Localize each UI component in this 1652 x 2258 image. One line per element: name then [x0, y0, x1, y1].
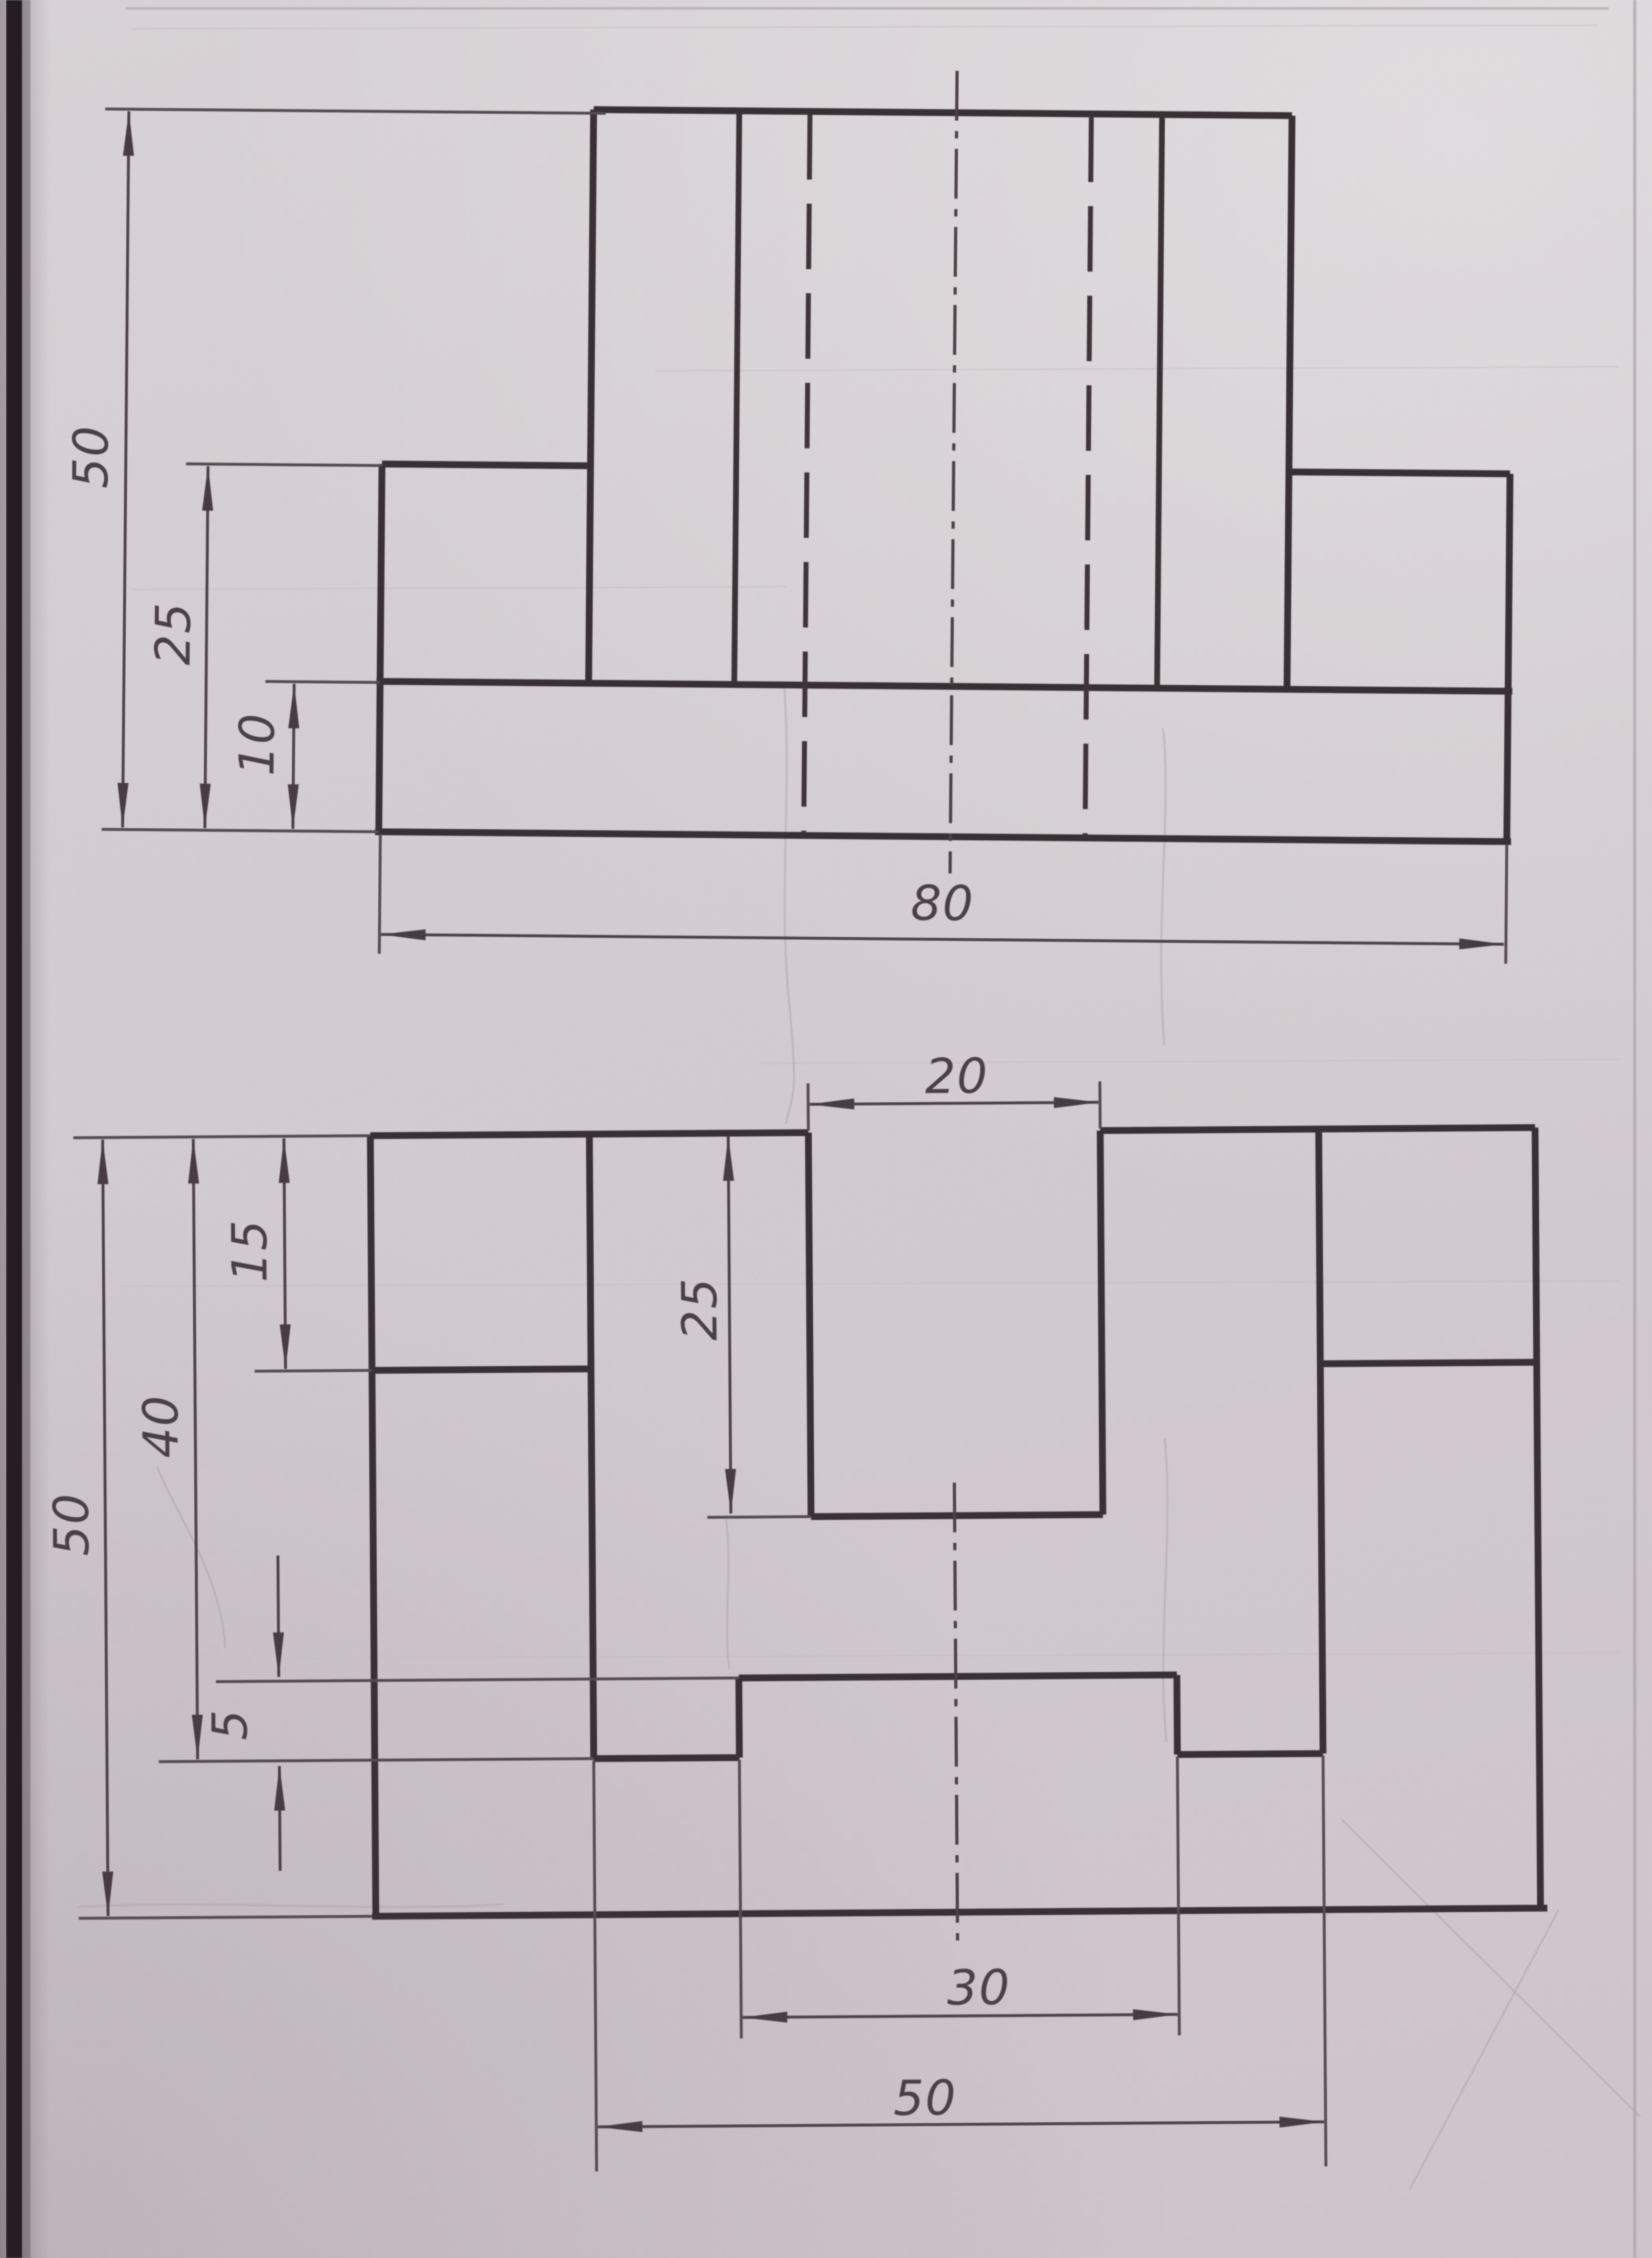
- dim-label-tab-width: 30: [947, 1959, 1011, 2016]
- drawing-photo: 50 25 10 80: [0, 0, 1652, 2258]
- extension-line-15: [255, 1371, 372, 1372]
- page-left-edge-bar: [6, 0, 22, 2258]
- page-left-edge-shadow: [22, 0, 30, 2258]
- extension-line-30-right: [1177, 1757, 1179, 2035]
- dim-label-base-height: 10: [229, 713, 286, 776]
- dim-label-total-depth: 50: [43, 1493, 100, 1557]
- extension-line-bottom-left: [79, 1916, 372, 1919]
- extension-line-30-left: [739, 1760, 741, 2038]
- dim-label-slot-depth: 25: [672, 1277, 728, 1341]
- extension-line-80-left: [379, 835, 380, 954]
- dim-label-column-depth: 40: [133, 1395, 189, 1459]
- dim-label-column-width: 50: [893, 2070, 957, 2127]
- dim-line-5-lower-arrow: [279, 1766, 280, 1871]
- dim-label-block-depth: 15: [222, 1219, 278, 1283]
- dim-label-slot-width: 20: [925, 1048, 989, 1105]
- dim-line-15: [284, 1138, 286, 1369]
- dim-label-step: 5: [202, 1708, 258, 1740]
- drawing-canvas: 50 25 10 80: [0, 0, 1652, 2258]
- dim-line-10: [293, 684, 294, 829]
- extension-line-25: [186, 464, 382, 465]
- extension-line-20-right: [1100, 1081, 1100, 1128]
- dim-line-5-upper-arrow: [278, 1555, 279, 1677]
- dim-label-total-width: 80: [911, 875, 975, 931]
- dim-label-shoulder-height: 25: [145, 601, 202, 665]
- dim-label-total-height: 50: [63, 425, 119, 489]
- extension-line-20-left: [808, 1083, 808, 1131]
- extension-line-10: [265, 682, 380, 683]
- extension-line-80-right: [1506, 844, 1507, 963]
- extension-line-slot-bottom: [707, 1517, 811, 1517]
